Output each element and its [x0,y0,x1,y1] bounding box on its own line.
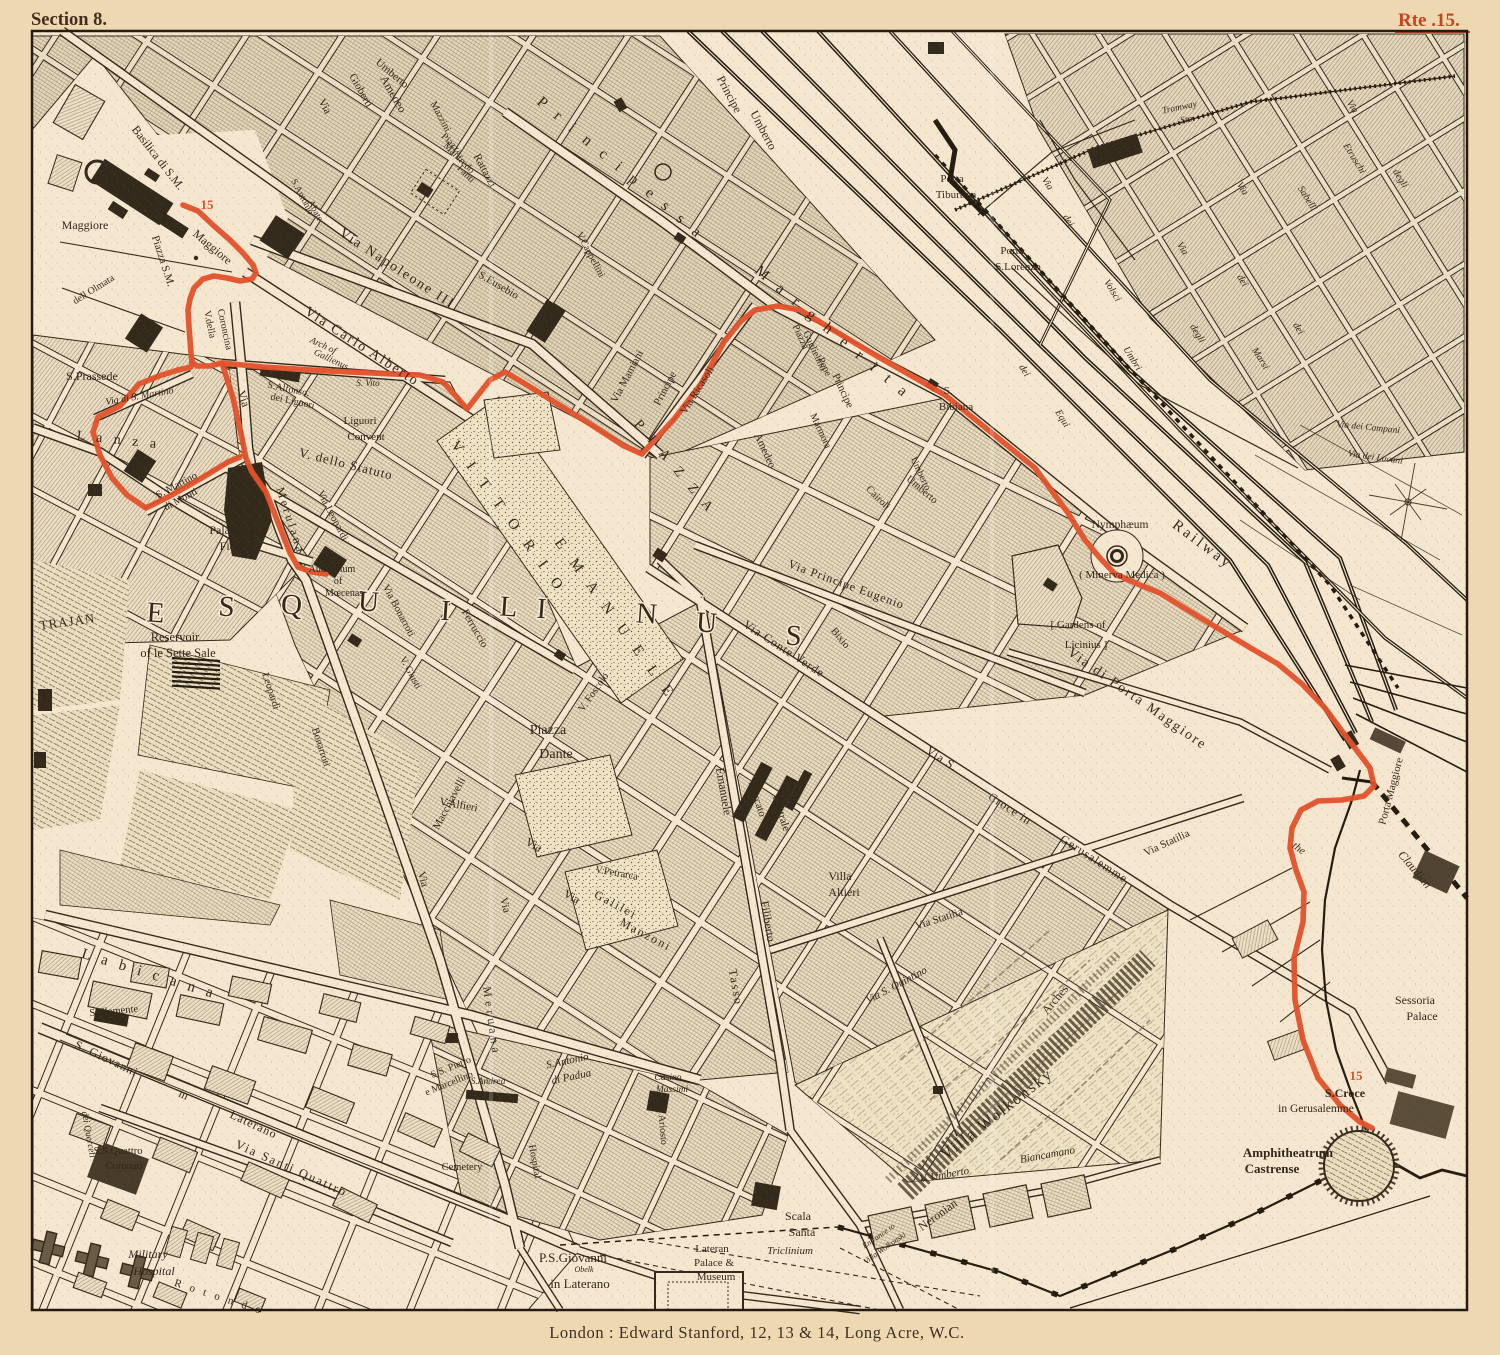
svg-text:Q: Q [280,588,303,621]
svg-text:( Minerva Medica ): ( Minerva Medica ) [1079,569,1165,581]
svg-text:Auditorium: Auditorium [309,564,356,575]
svg-text:Triclinium: Triclinium [767,1245,813,1257]
svg-text:L: L [499,590,519,623]
svg-text:S.Croce: S.Croce [1325,1086,1366,1100]
svg-text:S.Lorenzo: S.Lorenzo [995,261,1041,273]
svg-text:Field: Field [220,539,245,553]
svg-text:Castrense: Castrense [1245,1161,1300,1176]
svg-text:Palace &: Palace & [694,1257,734,1269]
svg-text:Sessoria: Sessoria [1395,993,1436,1007]
svg-text:in Gerusalemme: in Gerusalemme [1278,1103,1354,1115]
svg-text:Piazza: Piazza [530,723,567,738]
svg-text:Dante: Dante [539,747,572,762]
svg-text:in Laterano: in Laterano [550,1276,610,1291]
svg-text:Nymphæum: Nymphæum [1092,519,1149,531]
svg-text:15: 15 [1350,1068,1364,1083]
svg-text:Lateran: Lateran [695,1243,729,1255]
svg-text:Porta: Porta [1000,245,1023,257]
svg-text:[ Gardens of: [ Gardens of [1051,619,1106,631]
svg-text:Obelk: Obelk [574,1265,594,1274]
svg-text:15: 15 [201,197,215,212]
svg-text:Altieri: Altieri [828,885,860,899]
svg-text:Palace: Palace [1406,1009,1437,1023]
svg-text:Reservoir: Reservoir [151,630,200,644]
svg-text:S.Prassede: S.Prassede [66,369,118,383]
svg-text:London : Edward Stanford, 12,: London : Edward Stanford, 12, 13 & 14, L… [549,1323,965,1342]
svg-text:Cemetery: Cemetery [442,1162,484,1173]
svg-text:of le Sette Sale: of le Sette Sale [140,646,216,660]
svg-text:S. Vito: S. Vito [356,378,380,388]
svg-text:Tiburtina: Tiburtina [936,189,977,201]
svg-text:Porta: Porta [940,173,963,185]
svg-text:Scala: Scala [785,1209,812,1223]
svg-text:Santa: Santa [789,1225,816,1239]
svg-text:Rte .15.: Rte .15. [1398,10,1460,31]
svg-text:Mœcenas: Mœcenas [325,588,363,599]
svg-text:S.S.Quattro: S.S.Quattro [93,1146,142,1157]
svg-text:Amphitheatrum: Amphitheatrum [1243,1145,1333,1160]
svg-text:Military: Military [127,1247,168,1261]
svg-text:Bibiana: Bibiana [939,401,973,413]
svg-text:Convent: Convent [347,431,384,443]
svg-text:N: N [635,597,658,630]
svg-text:Hospital: Hospital [132,1264,175,1278]
svg-text:S.Andrea: S.Andrea [471,1077,506,1087]
svg-text:U: U [695,606,718,639]
svg-text:E: E [146,596,166,629]
svg-text:Museum: Museum [697,1271,736,1283]
svg-text:Villa: Villa [828,869,852,883]
svg-text:Palazzo: Palazzo [209,523,246,537]
svg-text:P.S.Giovanni: P.S.Giovanni [539,1250,607,1265]
svg-text:S: S [217,590,235,623]
svg-text:Section 8.: Section 8. [31,10,107,30]
svg-text:Massimi: Massimi [655,1085,689,1095]
svg-text:Maggiore: Maggiore [62,218,109,232]
svg-text:S.: S. [944,385,953,397]
svg-text:Casino: Casino [655,1073,682,1083]
svg-text:of: of [334,576,343,587]
svg-text:Liguori: Liguori [344,415,377,427]
svg-text:Coronati: Coronati [106,1161,143,1172]
